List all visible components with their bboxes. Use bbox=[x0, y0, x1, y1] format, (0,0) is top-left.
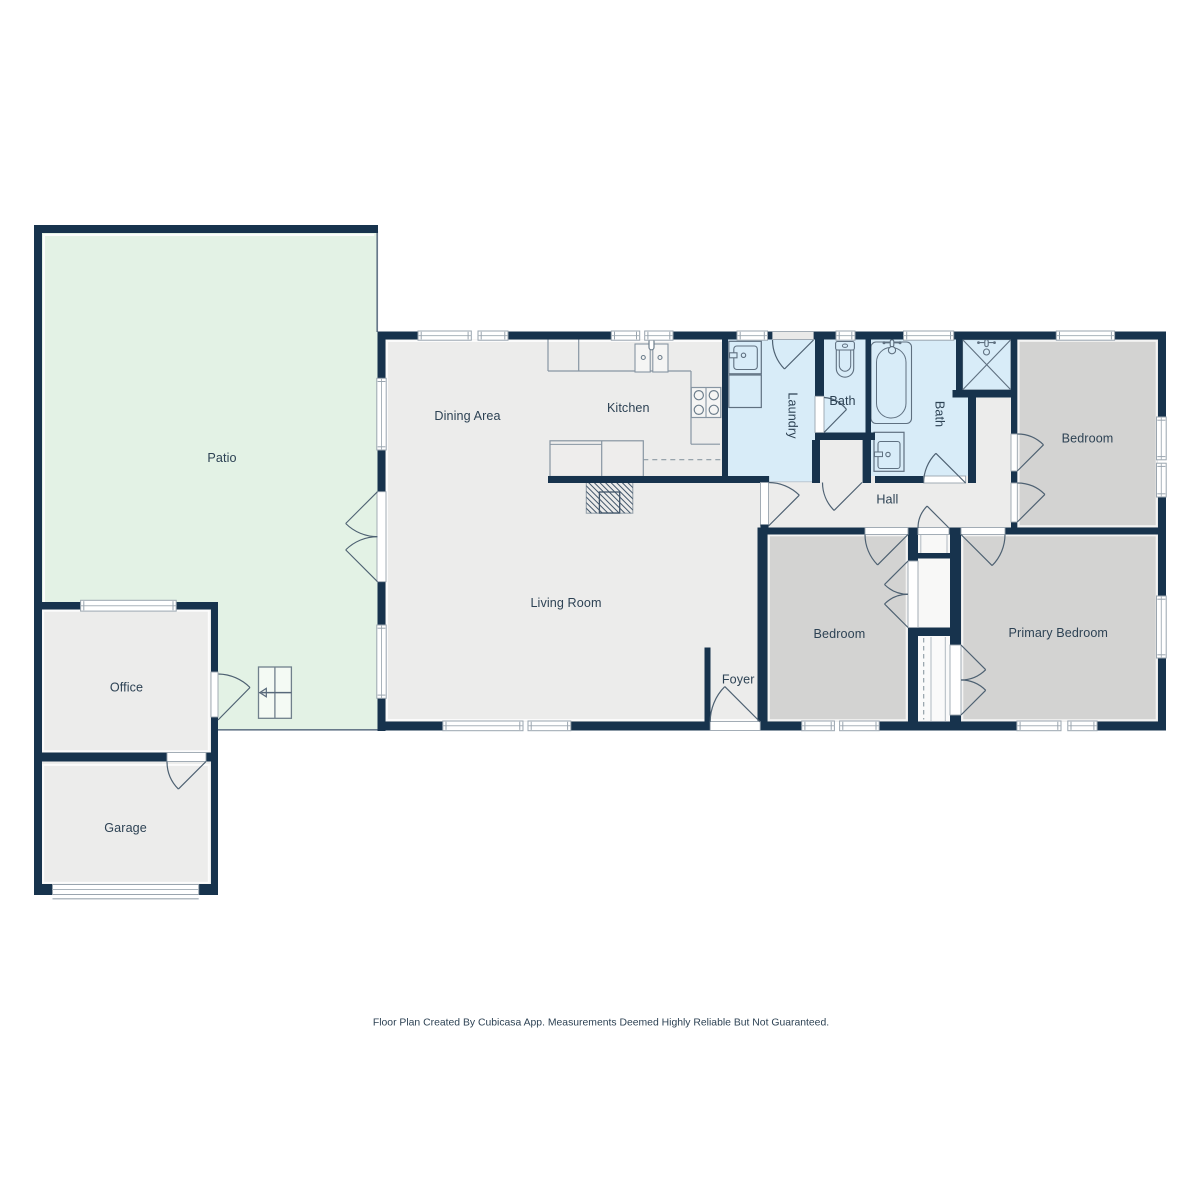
svg-text:Bath: Bath bbox=[829, 394, 855, 408]
svg-text:Bath: Bath bbox=[933, 401, 947, 427]
svg-text:Hall: Hall bbox=[876, 493, 898, 507]
svg-text:Garage: Garage bbox=[104, 821, 147, 835]
svg-text:Floor Plan Created By Cubicasa: Floor Plan Created By Cubicasa App. Meas… bbox=[373, 1018, 829, 1029]
svg-text:Laundry: Laundry bbox=[785, 392, 799, 439]
svg-text:Dining Area: Dining Area bbox=[434, 409, 500, 423]
svg-text:Primary Bedroom: Primary Bedroom bbox=[1009, 626, 1108, 640]
svg-text:Bedroom: Bedroom bbox=[813, 627, 865, 641]
svg-text:Bedroom: Bedroom bbox=[1062, 432, 1114, 446]
svg-text:Patio: Patio bbox=[207, 451, 236, 465]
svg-text:Office: Office bbox=[110, 681, 143, 695]
svg-text:Kitchen: Kitchen bbox=[607, 401, 650, 415]
svg-text:Living Room: Living Room bbox=[530, 596, 601, 610]
svg-text:Foyer: Foyer bbox=[722, 673, 755, 687]
